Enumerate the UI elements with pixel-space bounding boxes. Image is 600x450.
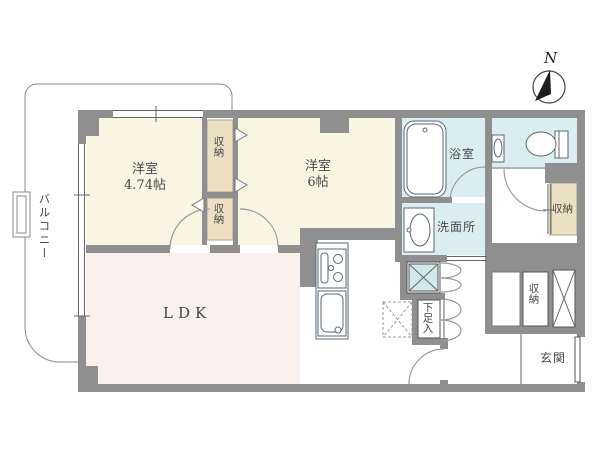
floorplan: バルコニー 洋室 4.74帖 洋室 6帖 LDK 浴室 洗面所 玄関 収納 収納… — [0, 0, 600, 450]
shoe-cabinet-label: 下足入 — [422, 302, 433, 334]
toilet-hand-basin — [492, 135, 504, 162]
entrance-door — [575, 337, 585, 382]
compass — [533, 70, 565, 103]
north-window — [113, 110, 203, 118]
washing-machine-space — [407, 262, 440, 293]
toilet — [526, 131, 568, 158]
ldk-label: LDK — [163, 304, 211, 323]
stove — [318, 249, 346, 288]
western1-label: 洋室 4.74帖 — [95, 162, 195, 195]
entrance-label: 玄関 — [540, 351, 566, 366]
western2-name: 洋室 — [285, 159, 351, 175]
kitchen-counter — [316, 243, 348, 339]
closet-b-label: 収納 — [213, 203, 224, 224]
closet-hall-label: 収納 — [552, 203, 573, 216]
refrigerator-space — [383, 302, 412, 337]
floorplan-drawing — [0, 0, 600, 450]
balcony-label: バルコニー — [38, 193, 50, 261]
western1-name: 洋室 — [95, 162, 195, 178]
toilet-door — [504, 169, 546, 211]
closet-entrance-label: 収納 — [528, 283, 539, 304]
western2-label: 洋室 6帖 — [285, 159, 351, 192]
kitchen-sink — [318, 291, 346, 336]
western2-size: 6帖 — [285, 175, 351, 191]
balcony-partition — [13, 192, 30, 237]
ldk-door — [409, 349, 444, 384]
washbasin — [404, 208, 434, 252]
bathtub — [404, 121, 446, 197]
north-label: N — [544, 49, 557, 68]
closet-a-label: 収納 — [213, 136, 224, 157]
western1-size: 4.74帖 — [95, 178, 195, 194]
washroom-label: 洗面所 — [437, 220, 476, 235]
bathroom-label: 浴室 — [449, 147, 475, 162]
